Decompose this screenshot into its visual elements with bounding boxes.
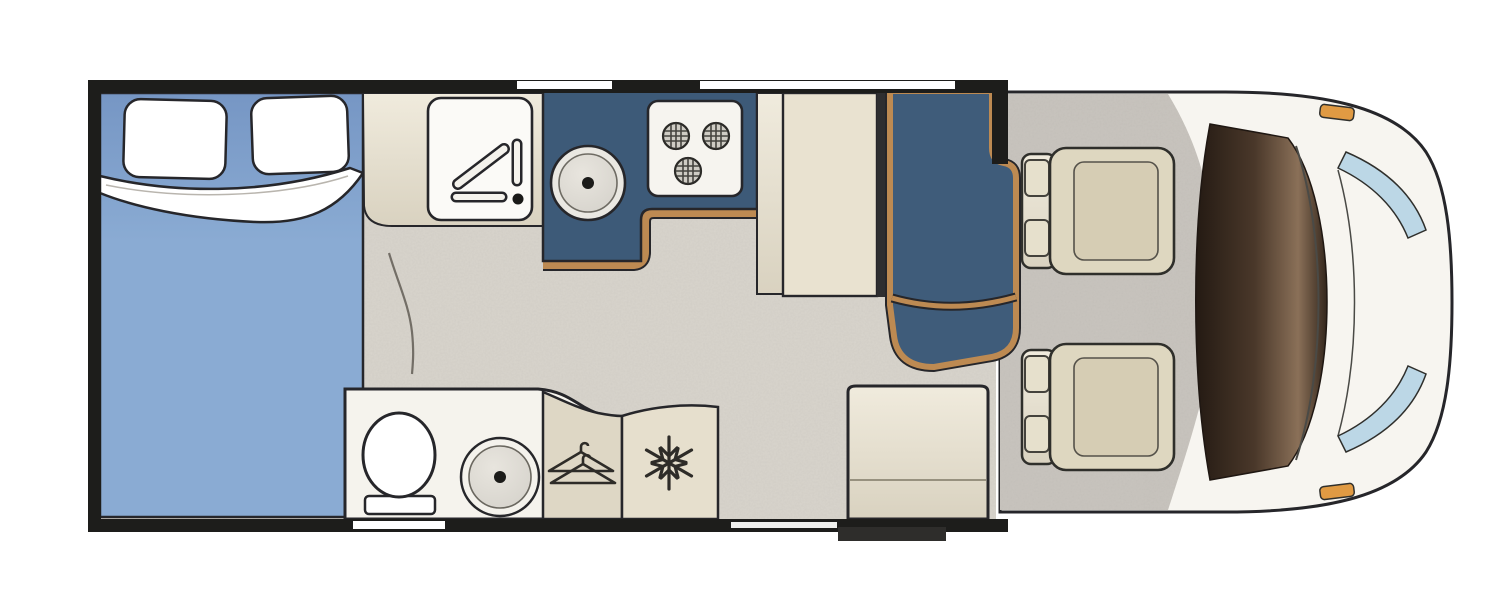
driver-seat — [1022, 148, 1174, 274]
entry-door-opening — [731, 522, 837, 528]
dashboard — [1196, 124, 1327, 480]
passenger-seat-armrest-top — [1025, 356, 1049, 392]
round-sink — [551, 146, 625, 220]
shower-drain — [494, 471, 506, 483]
step-cabinet — [848, 386, 988, 519]
toilet — [363, 413, 435, 497]
bedroom-area — [100, 93, 363, 517]
window-top-2 — [700, 81, 955, 89]
passenger-seat-armrest-bottom — [1025, 416, 1049, 452]
motorhome-floorplan — [0, 0, 1500, 589]
bathroom-area — [345, 389, 718, 519]
pillow-right — [251, 95, 350, 174]
entrance-area — [848, 386, 988, 519]
cab-section — [998, 92, 1452, 512]
hob-3-burner — [648, 101, 742, 196]
passenger-seat-cushion-inner — [1074, 358, 1158, 456]
burner-2 — [703, 123, 729, 149]
pillow-left — [123, 99, 227, 180]
sink-drain — [582, 177, 594, 189]
window-top-1 — [517, 81, 612, 89]
floorplan-stage: Motorhome floor plan (top view) — [0, 0, 1500, 589]
toilet-base — [365, 496, 435, 514]
window-bottom-1 — [353, 521, 445, 529]
passenger-seat — [1022, 344, 1174, 470]
drainer-plug — [513, 194, 524, 205]
driver-seat-armrest-top — [1025, 160, 1049, 196]
burner-1 — [663, 123, 689, 149]
burner-3 — [675, 158, 701, 184]
wall-rear — [88, 80, 101, 532]
entry-step — [838, 527, 946, 541]
habitation-section — [88, 80, 1016, 541]
driver-seat-armrest-bottom — [1025, 220, 1049, 256]
dinette-side-bench — [757, 93, 783, 294]
shower-basin — [461, 438, 539, 516]
driver-seat-cushion-inner — [1074, 162, 1158, 260]
wall-stub-front — [992, 80, 1008, 164]
dinette-table — [783, 93, 877, 296]
